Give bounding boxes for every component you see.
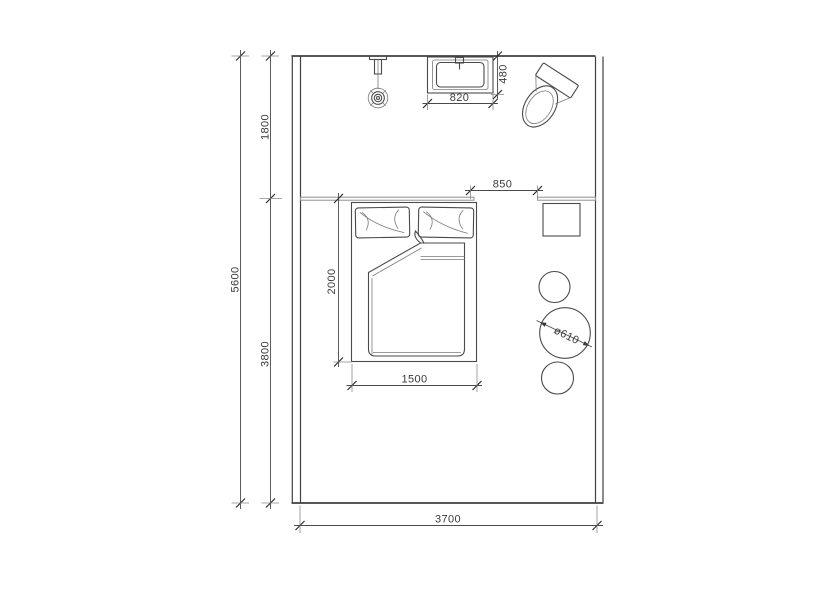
dimension-table-diameter: ø610 [537, 321, 593, 348]
total-height-label: 5600 [230, 266, 242, 292]
floor-plan: 5600 1800 3800 3700 850 820 [0, 0, 837, 592]
dimension-opening: 850 [465, 179, 543, 200]
dimension-total-height: 5600 [230, 50, 250, 509]
toilet-bowl [515, 79, 565, 133]
shower-head-icon [368, 56, 388, 108]
dimension-total-width: 3700 [294, 506, 603, 534]
partition-right-segment [538, 197, 596, 200]
bathroom-sink [428, 57, 494, 93]
round-stool-top [539, 272, 570, 303]
pillow-right [418, 207, 474, 238]
lower-depth-label: 3800 [260, 341, 272, 367]
dimension-sink-depth: 480 [491, 51, 510, 100]
bed-frame [352, 203, 477, 362]
pillow-left [355, 207, 410, 238]
partition-wall [301, 197, 596, 200]
sink-basin [437, 63, 485, 88]
opening-label: 850 [493, 179, 513, 191]
toilet-seat [520, 86, 559, 129]
sink-width-label: 820 [450, 92, 470, 104]
bed-width-label: 1500 [401, 374, 427, 386]
dimension-zone-depths: 1800 3800 [260, 50, 283, 509]
table-diameter-label: ø610 [552, 325, 581, 347]
sink-rim [433, 60, 489, 90]
dimension-sink-width: 820 [423, 92, 499, 110]
toilet [510, 63, 578, 137]
bed-blanket [369, 231, 465, 356]
bed-length-label: 2000 [326, 268, 338, 294]
dimension-bed-length: 2000 [326, 193, 352, 367]
total-width-label: 3700 [435, 514, 461, 526]
side-table [543, 204, 580, 237]
dimension-bed-width: 1500 [347, 364, 483, 392]
double-bed [352, 203, 477, 362]
round-stool-bottom [542, 362, 574, 394]
floor-plan-drawing: 5600 1800 3800 3700 850 820 [0, 0, 837, 592]
partition-left-segment [301, 197, 475, 200]
upper-depth-label: 1800 [260, 114, 272, 140]
sink-depth-label: 480 [498, 64, 510, 84]
